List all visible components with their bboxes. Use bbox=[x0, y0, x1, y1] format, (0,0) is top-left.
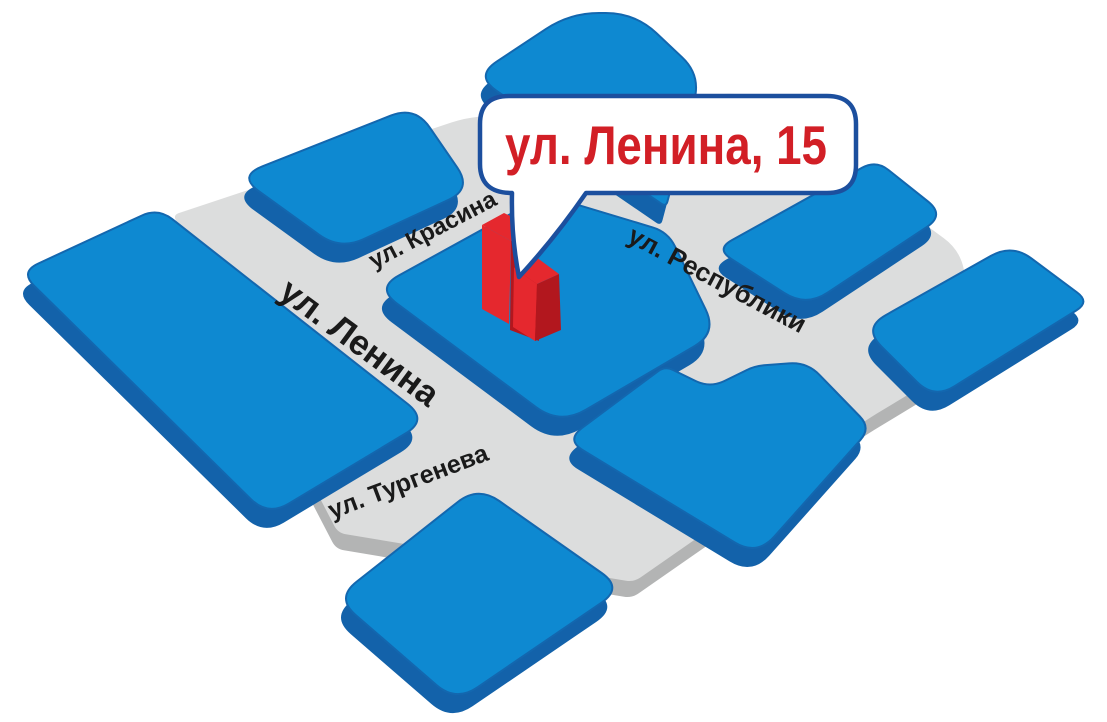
svg-text:ул. Ленина, 15: ул. Ленина, 15 bbox=[505, 114, 827, 176]
